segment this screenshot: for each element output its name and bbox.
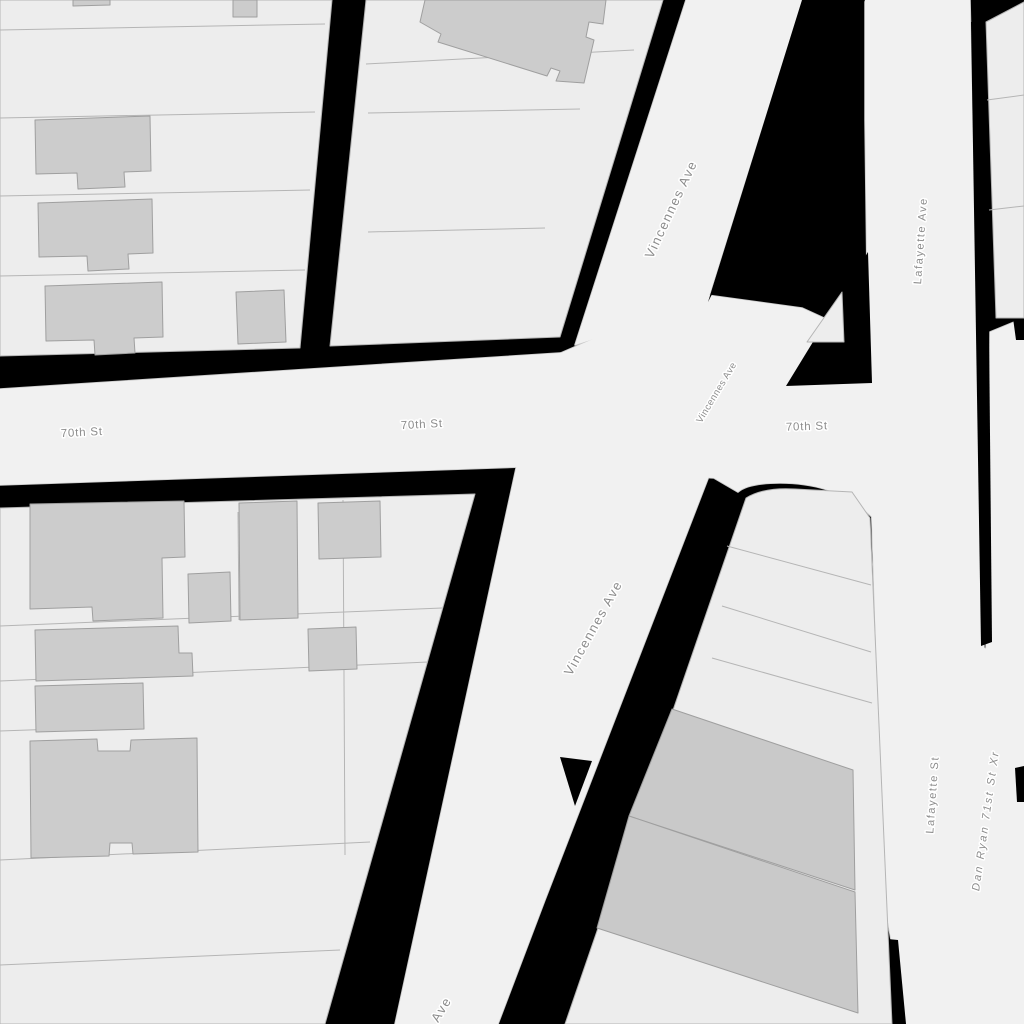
street-label-70th-st-right: 70th St — [786, 420, 828, 433]
building-sw-6 — [308, 627, 357, 671]
building-nw-4 — [236, 290, 286, 344]
street-label-70th-st-center: 70th St — [401, 418, 444, 432]
building-sw-1 — [30, 501, 185, 621]
building-sw-4 — [318, 501, 381, 559]
building-sw-2 — [188, 572, 231, 623]
building-sw-8 — [30, 738, 198, 858]
map-svg: 70th St 70th St 70th St Vincennes Ave Vi… — [0, 0, 1024, 1024]
building-sw-3 — [239, 501, 298, 620]
building-sw-7 — [35, 683, 144, 732]
building-sw-5 — [35, 626, 193, 681]
street-label-70th-st-left: 70th St — [61, 426, 104, 440]
building-tiny-1 — [73, 0, 110, 6]
map-canvas[interactable]: 70th St 70th St 70th St Vincennes Ave Vi… — [0, 0, 1024, 1024]
building-tiny-2 — [233, 0, 257, 17]
